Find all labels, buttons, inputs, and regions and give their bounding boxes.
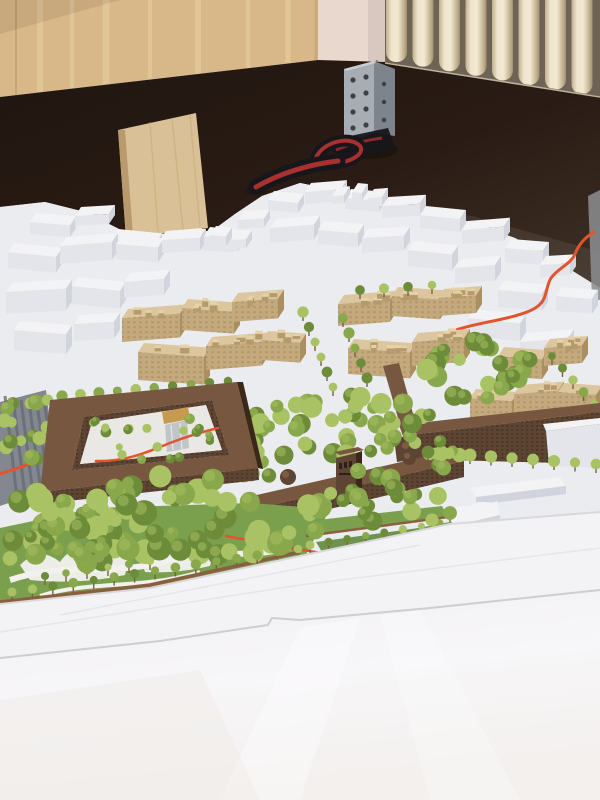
glass-pavilion [165,420,189,452]
tree-highlight [175,484,186,495]
tree-highlight [143,425,148,430]
roof-cube [566,346,571,352]
tree-highlight [88,490,99,501]
tree-highlight [71,520,81,530]
tree [48,581,57,590]
roof-cube-top [278,330,286,333]
tree-highlight [283,526,290,533]
roof-cube [551,385,557,390]
tree [62,569,69,576]
roof-cube-top [293,334,301,336]
tree [125,560,133,568]
roof-cube [247,300,253,306]
radiator-tube [439,0,460,71]
tree-highlight [352,464,360,472]
tree-highlight [34,432,41,439]
wood-block-windows [122,313,180,342]
wall-shade [368,0,385,62]
tree-highlight [437,461,445,469]
tree-highlight [276,447,286,457]
roof-cube [399,348,407,351]
roof-cube-top [180,345,189,348]
white-block-front [362,235,404,253]
roof-cube [538,390,543,393]
tree-highlight [495,381,503,389]
bracket-left-plate [344,61,374,144]
roof-cube-top [453,335,462,337]
tree [90,576,98,584]
roof-cube-top [246,336,254,339]
wood-block-windows [262,340,300,363]
tree [506,452,517,463]
tree-highlight [185,414,190,419]
tree [110,572,119,581]
roof-cube [180,348,189,354]
tree-highlight [163,491,170,498]
tree-highlight [366,446,372,452]
tree-highlight [210,546,221,557]
tree [443,506,457,520]
tree-highlight [107,480,116,489]
tree-highlight [242,493,252,503]
white-block-front [210,235,226,246]
radiator-tube [572,0,593,94]
tree-highlight [205,490,214,499]
roof-cube [371,348,376,353]
tree-highlight [180,427,184,431]
tree-highlight [25,451,33,459]
photo-architectural-model [0,0,600,800]
tree-highlight [167,455,172,460]
wood-block-windows [182,308,234,334]
roof-cube-top [159,310,165,313]
tree-highlight [342,434,350,442]
roof-cube-top [237,335,246,338]
tree-highlight [308,523,317,532]
roof-cube [210,305,218,311]
roof-cube [269,293,277,297]
tree [252,550,261,559]
tree [151,566,159,574]
tree-highlight [168,528,174,534]
tree [191,559,201,569]
tree [351,344,360,353]
tree [7,587,16,596]
tree [548,455,560,467]
tree [356,358,366,368]
tree-highlight [353,492,362,501]
tree-highlight [43,505,52,514]
roof-cube-top [210,302,218,306]
tree [463,448,476,461]
tree [422,446,435,459]
roof-cube [246,339,254,344]
plywood-board [118,113,209,244]
scene-canvas [0,0,600,800]
tree-highlight [446,387,456,397]
tree-highlight [359,508,366,515]
tree-highlight [206,432,210,436]
tree-highlight [195,425,200,430]
tree-highlight [325,488,331,494]
tree [212,557,220,565]
tree-highlight [116,444,120,448]
tree-highlight [482,377,490,385]
tree [548,352,556,360]
white-block-front [124,279,164,298]
tree-highlight [147,526,156,535]
tree [322,367,333,378]
city-model [0,180,600,800]
roof-cube [212,342,218,347]
tree [428,281,436,289]
white-block-front [14,330,66,354]
tree-highlight [96,502,103,509]
tree-highlight [138,455,143,460]
tree-highlight [118,451,123,456]
roof-cube [146,313,152,318]
tree-highlight [151,467,162,478]
tree-highlight [4,435,11,442]
roof-cube-top [538,388,543,390]
tree-highlight [389,430,396,437]
left-dome-highlight [282,471,289,478]
roof-cube-top [387,345,394,348]
roof-cube-top [575,336,580,338]
roof-cube [155,348,161,351]
tree [294,545,303,554]
tree-highlight [119,539,131,551]
tree [68,578,78,588]
roof-cube-top [557,340,563,343]
roof-cube [410,295,418,300]
tree [485,450,497,462]
tree-highlight [382,442,389,449]
tree [130,569,139,578]
tree-highlight [92,417,96,421]
tree [403,282,413,292]
roof-cube [544,384,550,390]
roof-cube [262,297,269,301]
right-dome-highlight [404,453,410,459]
roof-cube-top [146,310,152,313]
roof-cube-top [453,291,461,294]
tree-highlight [26,531,32,537]
tree-highlight [264,421,270,427]
tree [232,554,241,563]
roof-cube-top [443,331,450,334]
tree-highlight [223,544,231,552]
tree-highlight [74,547,83,556]
tree-highlight [373,395,383,405]
tree-highlight [458,390,466,398]
tree-highlight [387,480,396,489]
roof-cube-top [468,289,475,291]
roof-cube-top [212,339,218,342]
white-block-front [455,265,495,284]
tree [568,375,577,384]
tree [399,525,407,533]
tree-highlight [102,424,106,428]
roof-cube-top [361,298,368,301]
tree-highlight [118,495,129,506]
tree-highlight [171,540,182,551]
tree-highlight [404,503,413,512]
tree-highlight [435,436,441,442]
tree-highlight [272,401,278,407]
tree [443,448,454,459]
bracket-right-plate [374,61,395,136]
roof-cube [557,343,563,348]
tree-highlight [270,532,283,545]
tree [104,563,111,570]
tree-highlight [4,532,14,542]
roof-cube-top [452,288,460,291]
tree-highlight [326,414,333,421]
tree [146,557,154,565]
radiator-tube [519,0,540,85]
tree-highlight [204,470,215,481]
tree-highlight [299,496,310,507]
tree-highlight [299,438,306,445]
tree [306,541,315,550]
roof-cube-top [155,346,161,348]
tree [379,283,389,293]
roof-cube-top [269,291,277,293]
roof-cube-top [410,292,418,295]
white-block-front [368,197,382,207]
tree-highlight [290,421,299,430]
tree-highlight [110,515,116,521]
tree-highlight [101,509,110,518]
tree-highlight [325,445,335,455]
roof-cube [453,294,461,298]
roof-cube-top [551,383,557,386]
tree-highlight [290,398,298,406]
tree-highlight [190,532,200,542]
tree [317,353,326,362]
wood-block-windows [232,298,278,322]
white-block-front [238,218,264,229]
tree [171,563,181,573]
white-block-front [382,204,420,218]
tree-highlight [219,493,229,503]
tree-highlight [250,521,261,532]
tree-highlight [424,410,430,416]
tree-highlight [252,415,262,425]
tree-highlight [439,345,445,351]
tree-highlight [206,521,216,531]
roof-cube-top [566,342,571,345]
tree-highlight [404,415,414,425]
tree-highlight [175,453,180,458]
tree-highlight [124,426,129,431]
white-block-front [352,192,362,200]
roof-cube [387,348,394,354]
tree-highlight [340,410,347,417]
tree [274,548,282,556]
radiator-tube [545,0,566,90]
roof-cube [159,313,165,318]
tree-highlight [95,543,103,551]
tree-highlight [30,396,38,404]
tree [338,313,348,323]
tree [297,306,308,317]
roof-cube [278,333,286,338]
tree [362,532,369,539]
radiator-tube [492,0,513,80]
roof-cube-top [234,340,240,342]
tree-highlight [153,443,158,448]
roof-cube-top [399,346,407,348]
tree-highlight [385,412,391,418]
tree-highlight [375,434,381,440]
tree-highlight [508,370,515,377]
tree-highlight [27,545,37,555]
tree-highlight [198,542,207,551]
roof-cube [373,300,382,305]
roof-cube-top [255,331,262,334]
tree [28,584,37,593]
roof-cube [193,308,199,312]
tree [329,383,338,392]
roof-cube [361,301,368,306]
tree-highlight [4,552,11,559]
tree-highlight [32,523,38,529]
tree-highlight [418,362,428,372]
tree-highlight [404,491,411,498]
tree [343,327,354,338]
roof-cube [453,337,462,341]
tree-highlight [454,354,460,360]
roof-cube-top [262,294,269,297]
white-block-front [232,239,246,249]
roof-cube-top [247,297,253,300]
roof-cube-top [568,336,574,339]
tree [380,528,388,536]
white-block-front [6,288,66,314]
tree-highlight [352,388,362,398]
tree-highlight [369,416,378,425]
roof-cube [443,334,450,339]
perimeter-dome-highlight [402,442,409,449]
roof-cube-top [544,381,550,384]
tree [355,285,365,295]
tree-highlight [480,341,488,349]
tree-highlight [338,495,345,502]
roof-cube-top [193,306,199,308]
white-block-front [556,296,592,314]
roof-cube [403,294,410,299]
tree-highlight [395,395,405,405]
roof-cube [468,291,475,295]
tree [343,535,351,543]
roof-cube [234,342,240,345]
radiator-tube [466,0,487,76]
tree [558,363,567,372]
tree-highlight [263,469,270,476]
tree-highlight [431,488,440,497]
radiator-tube [413,0,434,67]
tree-highlight [195,487,202,494]
roof-cube-top [202,298,208,301]
tree-highlight [383,470,393,480]
wood-block-windows [138,352,204,385]
roof-cube-top [195,304,201,307]
tree-highlight [2,402,9,409]
tree-highlight [57,495,65,503]
tree [362,373,373,384]
roof-cube-top [371,345,376,348]
tree-highlight [482,392,489,399]
tree [570,457,580,467]
roof-cube-top [134,307,142,310]
white-block-front [75,214,109,226]
roof-cube-top [370,339,377,343]
tree [527,454,539,466]
white-block-front [74,322,114,341]
tree-highlight [28,484,39,495]
tree-highlight [494,357,502,365]
tree-highlight [10,492,21,503]
tree [425,513,438,526]
radiator-tube [386,0,407,62]
tree [41,572,49,580]
tree [83,566,92,575]
tree [310,337,319,346]
tree [579,387,589,397]
tree-highlight [43,395,49,401]
tree [304,322,314,332]
white-block-front [162,238,200,253]
roof-cube [202,301,208,307]
tree-highlight [371,468,380,477]
roof-cube [293,336,301,339]
tree-highlight [304,399,314,409]
roof-cube [134,310,142,315]
roof-cube [255,334,262,339]
roof-cube [575,338,580,342]
white-block-front [332,195,344,204]
tree [324,538,332,546]
tree-highlight [524,353,532,361]
